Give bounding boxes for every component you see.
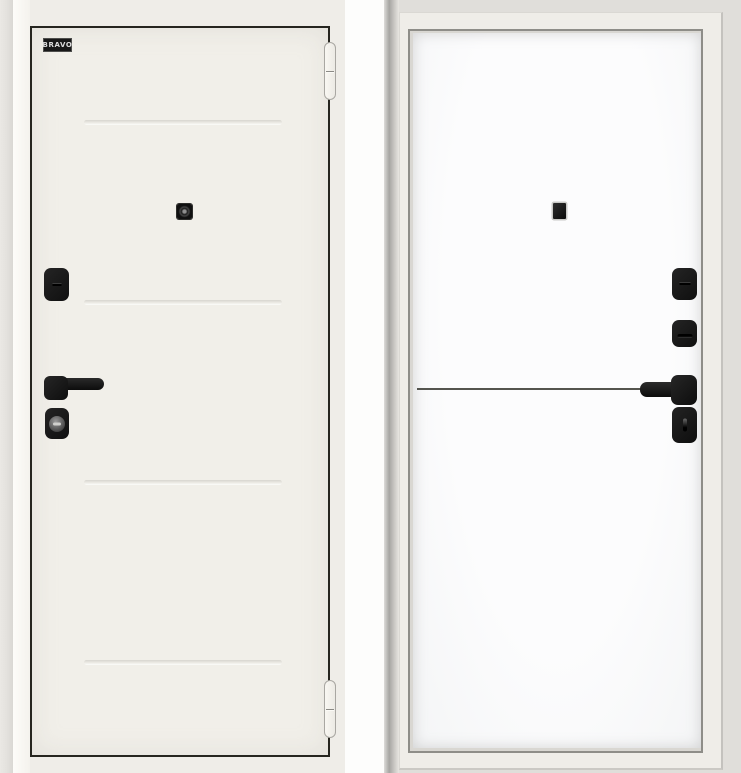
- lock-escutcheon-upper: [672, 268, 697, 300]
- door-handle-rose-front: [44, 376, 68, 400]
- hinge-bottom: [324, 680, 336, 738]
- brand-logo-badge: BRAVO: [43, 38, 72, 52]
- door-handle-rose-back: [671, 375, 697, 405]
- peephole-icon: [177, 204, 192, 219]
- keyhole-slot: [53, 422, 61, 425]
- groove-line-4: [84, 660, 282, 665]
- hinge-top: [324, 42, 336, 100]
- thumbturn-escutcheon: [672, 320, 697, 347]
- frame-casing-outer-edge: [384, 0, 399, 773]
- decorative-molding-line: [417, 388, 642, 390]
- door-back-view-panel: [384, 0, 741, 773]
- groove-line-2: [84, 300, 282, 305]
- brand-logo-text: BRAVO: [43, 42, 73, 49]
- door-side-edge: [13, 0, 30, 773]
- background-strip-left: [0, 0, 13, 773]
- key-cylinder-front: [45, 408, 69, 439]
- peephole-back-icon: [553, 203, 566, 219]
- groove-line-3: [84, 480, 282, 485]
- groove-line-1: [84, 120, 282, 125]
- key-cylinder-back: [672, 407, 697, 443]
- door-front-view-panel: BRAVO: [0, 0, 345, 773]
- deadbolt-escutcheon: [44, 268, 69, 301]
- door-leaf-front: [30, 26, 330, 757]
